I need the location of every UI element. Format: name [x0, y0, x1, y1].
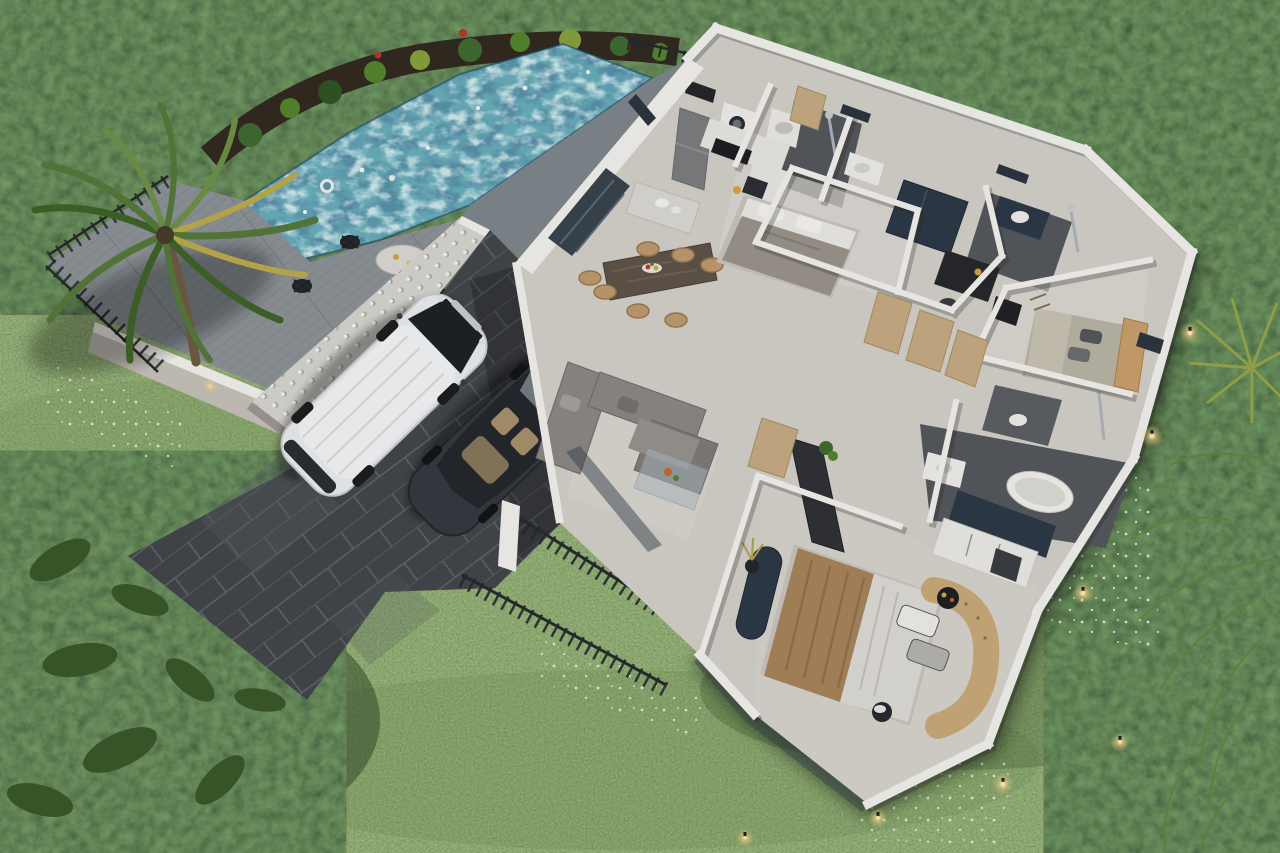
vignette [0, 0, 1280, 853]
villa-floorplan-render: Aerial 3D cutaway render of a single-sto… [0, 0, 1280, 853]
rendered-image: Aerial 3D cutaway render of a single-sto… [0, 0, 1280, 853]
